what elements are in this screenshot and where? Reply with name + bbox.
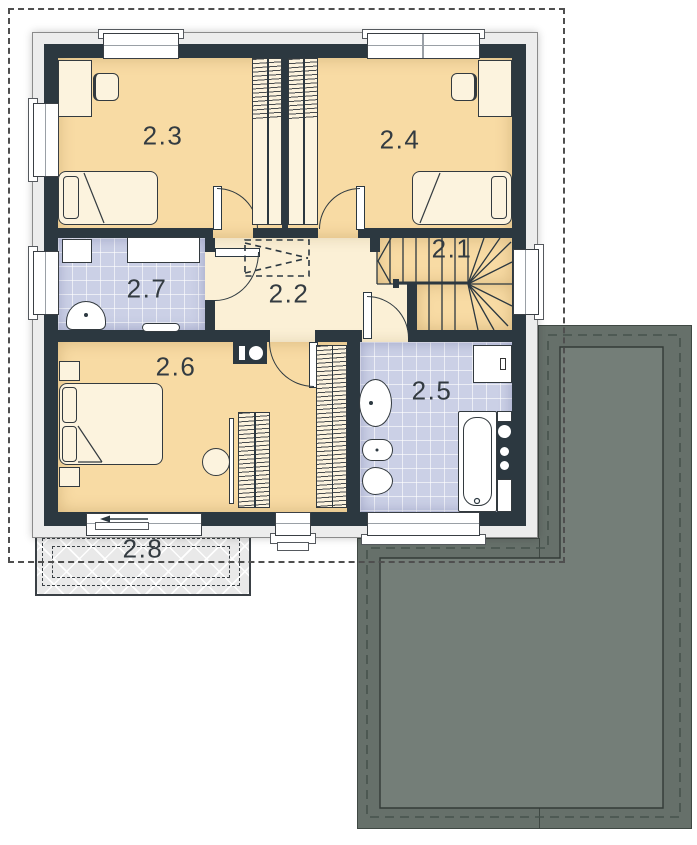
window-left-bathroom-2-7: [33, 251, 59, 315]
chair: [451, 73, 477, 101]
shelf: [497, 411, 512, 422]
bathroom-cabinet: [62, 239, 92, 263]
room-label-2-7: 2.7: [127, 274, 168, 305]
pillow: [63, 176, 79, 219]
wardrobe: [288, 58, 318, 225]
wardrobe: [238, 412, 270, 508]
stool: [202, 448, 230, 476]
desk: [478, 60, 512, 117]
bidet: [362, 439, 393, 461]
nightstand: [59, 361, 80, 381]
bath-cabinet: [497, 479, 512, 512]
fixture-circle: [500, 447, 509, 456]
wall-segment-stair-stub: [407, 283, 417, 330]
wardrobe: [316, 345, 347, 508]
sliding-panel: [95, 522, 149, 530]
room-label-2-4: 2.4: [380, 125, 421, 156]
nightstand: [59, 467, 80, 487]
chimney-flue-circle: [249, 346, 263, 360]
window-left-room-2-3: [33, 103, 59, 177]
floor-plan: 2.1 2.2 2.3 2.4 2.5 2.6 2.7 2.8: [0, 0, 697, 845]
wall-segment: [205, 300, 215, 330]
pillow: [491, 176, 507, 219]
window-bottom-bathroom-2-5: [367, 512, 480, 536]
desk: [58, 60, 92, 117]
window-sill: [277, 542, 309, 551]
room-label-2-5: 2.5: [412, 376, 453, 407]
floor-stairs-lower: [417, 284, 512, 330]
room-label-2-8: 2.8: [123, 534, 164, 565]
wardrobe: [252, 58, 282, 225]
chimney-vent-slot: [239, 346, 245, 360]
window-top-room-2-3: [103, 33, 179, 59]
room-label-2-6: 2.6: [156, 352, 197, 383]
window-right-stairs: [513, 249, 539, 315]
wall-segment: [205, 238, 215, 252]
fixture-circle: [498, 425, 511, 438]
room-label-2-1: 2.1: [432, 234, 473, 265]
room-label-2-2: 2.2: [269, 279, 310, 310]
washing-machine: [127, 237, 200, 263]
wall-segment: [408, 330, 512, 342]
washer-cabinet: [473, 345, 512, 383]
window-top-room-2-4: [367, 33, 480, 59]
window-bottom-small: [275, 512, 311, 536]
bath-mat: [142, 323, 180, 332]
pillow: [62, 426, 77, 462]
wardrobe-door: [229, 418, 234, 504]
wall-segment: [370, 238, 380, 252]
wall-segment: [315, 330, 362, 342]
chair: [93, 73, 119, 101]
wall-segment: [347, 342, 360, 512]
room-label-2-3: 2.3: [143, 121, 184, 152]
fixture-circle: [500, 461, 509, 470]
pillow: [62, 387, 77, 423]
bathtub-inner: [463, 417, 492, 506]
sink: [359, 379, 392, 427]
